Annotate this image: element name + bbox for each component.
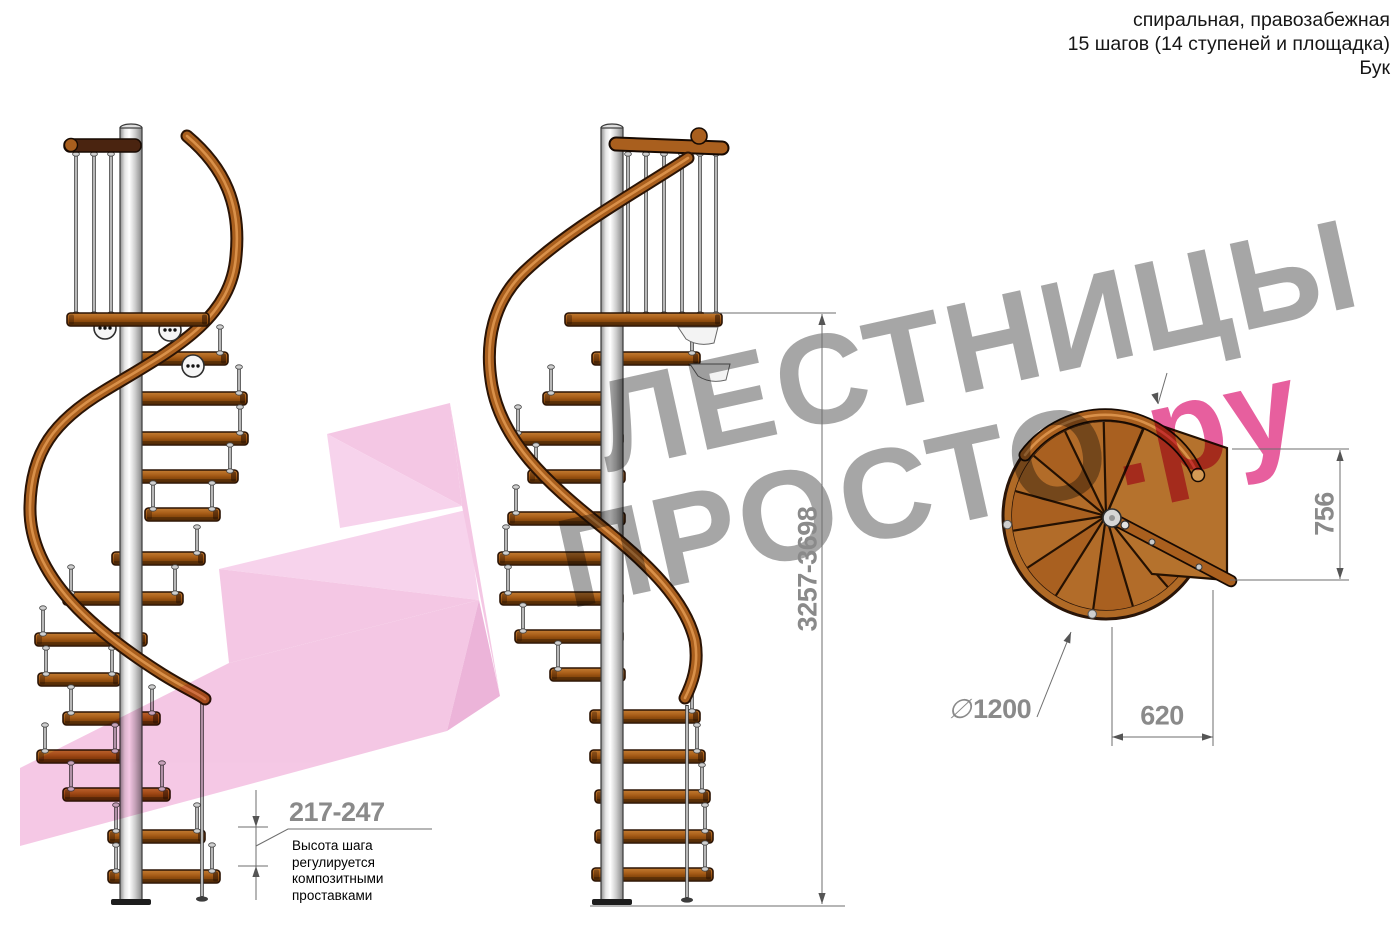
note-line: Высота шага — [292, 838, 383, 855]
material-label: Бук — [1068, 56, 1390, 80]
rise-adjustment-note: Высота шага регулируется композитными пр… — [292, 838, 383, 904]
note-line: композитными — [292, 871, 383, 888]
note-line: регулируется — [292, 855, 383, 872]
step-count-label: 15 шагов (14 ступеней и площадка) — [1068, 32, 1390, 56]
landing-depth-dimension-label: 756 — [1310, 492, 1341, 536]
title-block: спиральная, правозабежная 15 шагов (14 с… — [1068, 8, 1390, 80]
dimension-lines — [0, 0, 1400, 951]
step-rise-dimension-label: 217-247 — [289, 797, 385, 828]
total-height-dimension-label: 3257-3698 — [793, 507, 824, 632]
stair-type-label: спиральная, правозабежная — [1068, 8, 1390, 32]
technical-drawing-page: ЛЕСТНИЦЫ ПРОСТО.ру спиральная, правозабе… — [0, 0, 1400, 951]
diameter-dimension-label: ∅1200 — [948, 694, 1031, 725]
step-width-dimension-label: 620 — [1140, 701, 1184, 732]
diameter-value: 1200 — [973, 694, 1031, 724]
diameter-symbol: ∅ — [948, 694, 971, 724]
note-line: проставками — [292, 888, 383, 905]
